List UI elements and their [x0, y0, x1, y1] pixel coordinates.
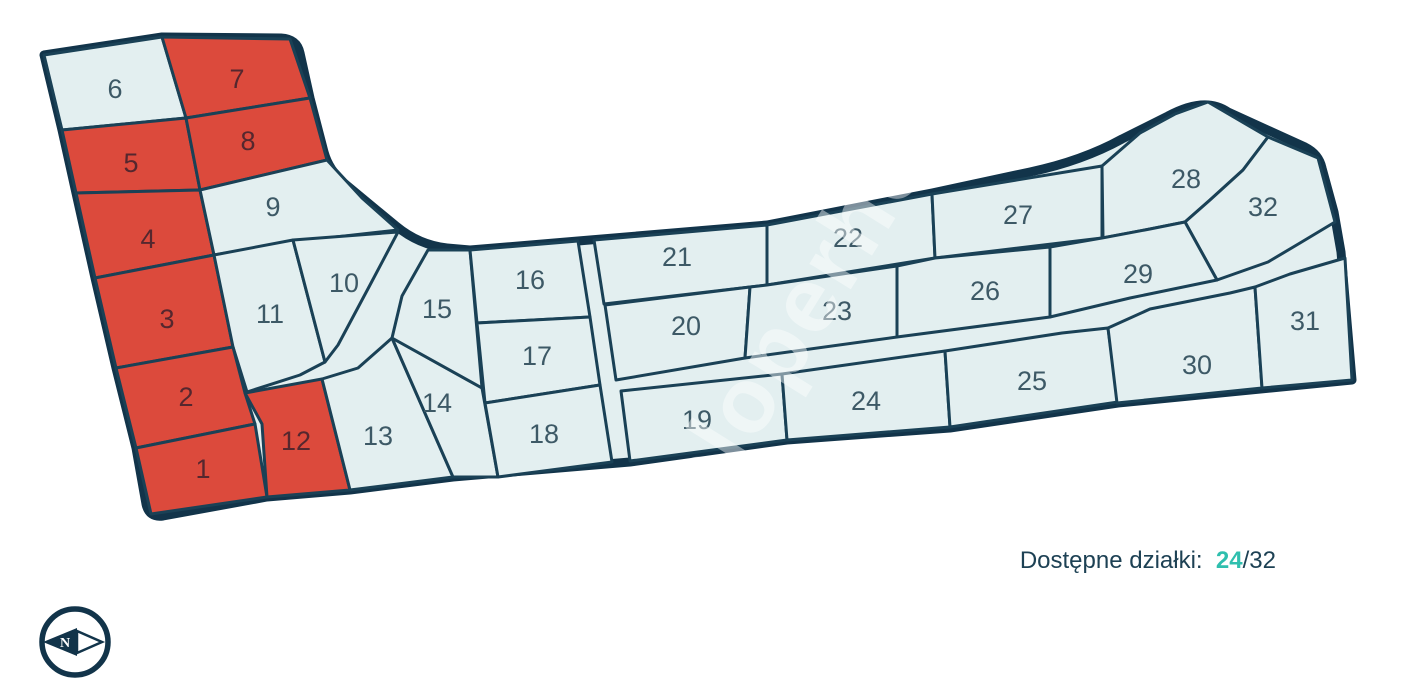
plot-16[interactable] — [470, 241, 590, 323]
plot-5[interactable] — [62, 118, 200, 193]
plot-18[interactable] — [485, 385, 612, 477]
plots-layer — [44, 37, 1352, 514]
compass-north-label: N — [60, 636, 70, 651]
plot-map: 6758493111021121314151617182122272832202… — [0, 0, 1428, 695]
availability-caption: Dostępne działki: 24/32 — [1020, 547, 1276, 575]
availability-label: Dostępne działki: — [1020, 547, 1203, 574]
available-count: 24 — [1216, 547, 1243, 574]
compass: N — [42, 609, 108, 675]
total-count: 32 — [1249, 547, 1276, 574]
